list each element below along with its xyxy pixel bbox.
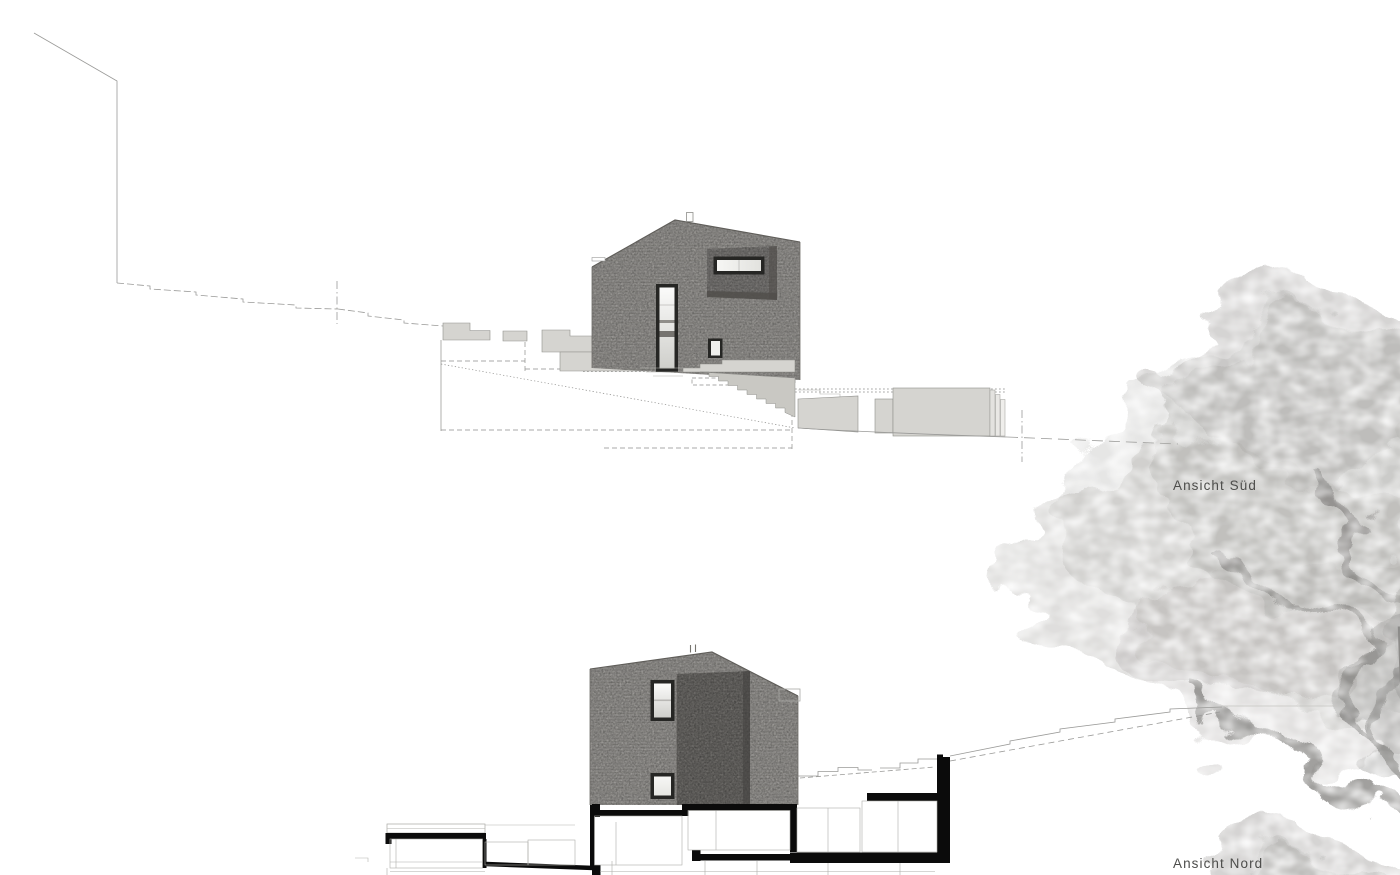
planter-wall-1 [485,842,528,865]
planter-wall-2 [528,840,575,865]
elevations-svg [0,0,1400,875]
projecting-volume [677,671,750,805]
tall-window-door [656,284,678,372]
section-ground-line [486,864,594,868]
upper-window-north [651,680,675,721]
roof-vent-north [691,645,696,653]
house-north [590,645,800,806]
view-label-north: Ansicht Nord [1173,856,1263,871]
exterior-stair [700,372,795,417]
section-left-building [355,824,594,875]
section-retaining-wall [937,757,950,863]
tree-south-left [1011,283,1400,875]
roof-vent-south [687,213,694,222]
small-window-south [708,339,723,359]
terrain-left [34,33,443,326]
dormer-box [707,246,777,300]
section-slab-left [386,833,487,839]
view-label-south: Ansicht Süd [1173,478,1257,493]
eave-detail [592,258,605,262]
lower-window-north [651,773,675,799]
house-south [592,213,800,418]
drawing-sheet: Ansicht Süd Ansicht Nord [0,0,1400,875]
